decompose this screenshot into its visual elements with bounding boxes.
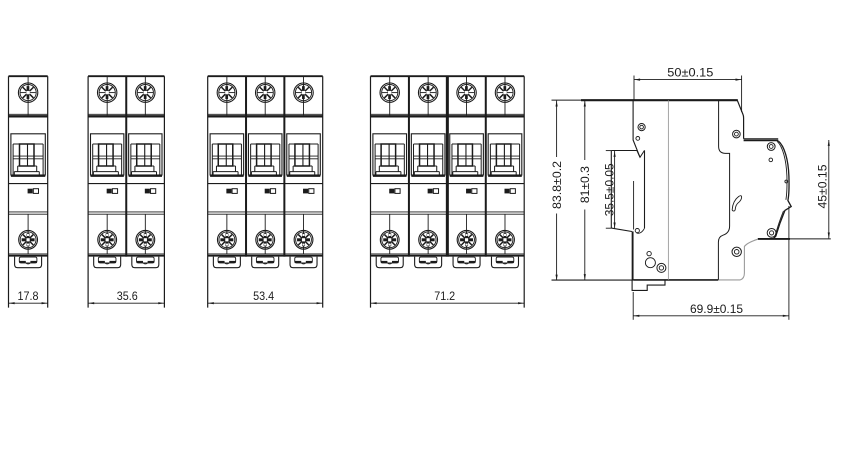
svg-text:50±0.15: 50±0.15 bbox=[667, 65, 713, 79]
svg-text:53.4: 53.4 bbox=[253, 289, 274, 303]
svg-text:17.8: 17.8 bbox=[18, 289, 39, 303]
svg-text:35.6: 35.6 bbox=[117, 289, 138, 303]
svg-text:35.5±0.05: 35.5±0.05 bbox=[602, 163, 616, 216]
svg-text:45±0.15: 45±0.15 bbox=[815, 164, 829, 208]
svg-text:83.8±0.2: 83.8±0.2 bbox=[550, 161, 564, 209]
svg-text:71.2: 71.2 bbox=[434, 289, 455, 303]
svg-text:81±0.3: 81±0.3 bbox=[578, 166, 592, 203]
svg-text:69.9±0.15: 69.9±0.15 bbox=[690, 302, 743, 316]
